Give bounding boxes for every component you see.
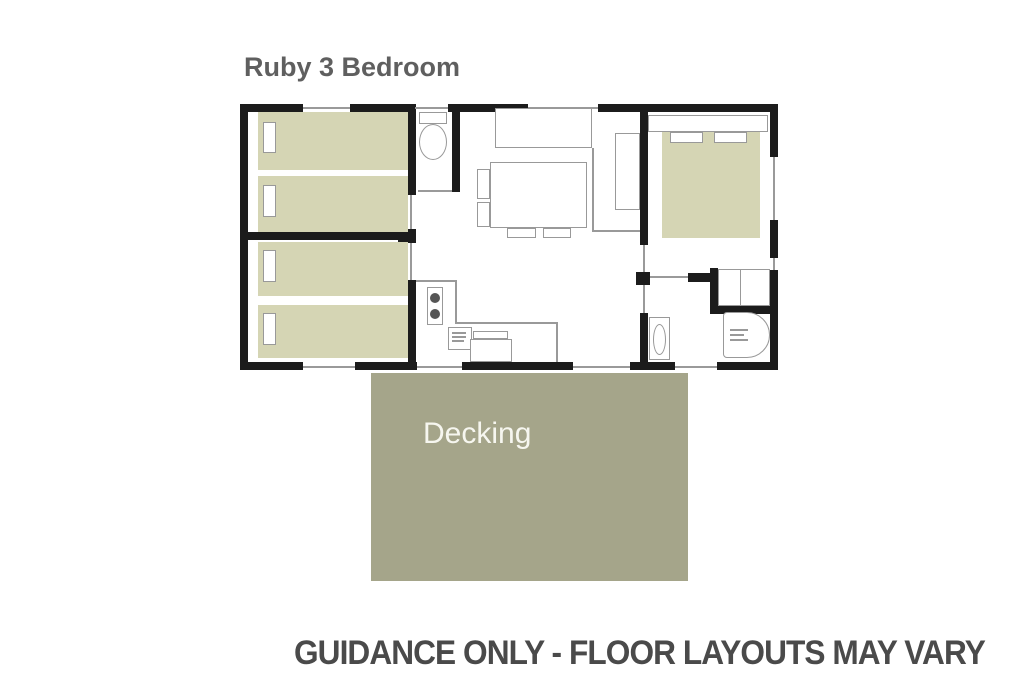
chair (507, 228, 536, 238)
sink-drainer-line (452, 336, 466, 338)
decking-area: Decking (371, 373, 688, 581)
wardrobe-divider-line (740, 269, 741, 306)
door-opening (410, 243, 412, 280)
hob-burner-icon (430, 293, 440, 303)
double-bed (662, 132, 760, 238)
counter-edge (455, 280, 457, 324)
pillow (263, 250, 276, 282)
counter-edge (556, 322, 558, 362)
window-line (773, 157, 775, 220)
shower-drain-line (730, 339, 748, 341)
sink-symbol (448, 327, 472, 350)
pillow (263, 122, 276, 153)
wall-segment (770, 104, 778, 157)
floor-plan: Decking (0, 0, 1024, 682)
guidance-caption: GUIDANCE ONLY - FLOOR LAYOUTS MAY VARY (294, 634, 985, 673)
pillow (714, 132, 747, 143)
sofa-symbol (615, 133, 640, 210)
sofa-symbol (495, 108, 592, 148)
wall-segment (640, 313, 648, 362)
wall-segment (717, 362, 778, 370)
window-line (303, 107, 350, 109)
door-opening (418, 190, 452, 192)
pillow (670, 132, 703, 143)
window-line (573, 366, 630, 368)
pillow (263, 185, 276, 217)
wall-segment (770, 220, 778, 258)
shower-drain-line (730, 334, 744, 336)
wall-segment (240, 362, 303, 370)
single-bed (258, 112, 408, 170)
chair (477, 202, 490, 227)
wall-segment (636, 272, 650, 285)
toilet-symbol (419, 124, 447, 160)
sink-drainer-line (452, 332, 466, 334)
dining-table (490, 162, 587, 228)
door-opening (410, 195, 412, 229)
sofa-edge-line (592, 230, 640, 232)
wall-segment (452, 104, 460, 192)
wall-segment (240, 232, 400, 240)
door-opening (643, 245, 645, 272)
sink-drainer-line (452, 340, 464, 342)
chair (543, 228, 571, 238)
wall-segment (462, 362, 573, 370)
door-opening (643, 285, 645, 313)
shower-drain-line (730, 329, 748, 331)
kitchen-unit (470, 339, 512, 362)
window-line (675, 366, 717, 368)
hob-burner-icon (430, 309, 440, 319)
wall-segment (350, 104, 415, 112)
wall-segment (630, 362, 675, 370)
wall-segment (240, 104, 303, 112)
sofa-edge-line (592, 148, 594, 232)
toilet-cistern-symbol (419, 112, 447, 124)
toilet-bowl-symbol (653, 324, 666, 355)
single-bed (258, 242, 408, 296)
door-opening (650, 276, 688, 278)
wardrobe (718, 269, 770, 306)
counter-edge (455, 322, 557, 324)
wall-segment (770, 270, 778, 370)
window-line (303, 366, 355, 368)
headboard (648, 115, 768, 132)
wall-segment (598, 104, 778, 112)
chair (477, 169, 490, 199)
wall-segment (408, 280, 416, 370)
wall-segment (640, 104, 648, 245)
decking-label: Decking (423, 417, 531, 451)
single-bed (258, 305, 408, 358)
floor-plan-page: Ruby 3 Bedroom (0, 0, 1024, 682)
window-line (773, 258, 775, 270)
pillow (263, 313, 276, 345)
window-line (417, 366, 462, 368)
wall-segment (408, 104, 416, 195)
counter-edge (416, 280, 455, 282)
window-line (415, 107, 448, 109)
worktop-appliance (473, 331, 508, 339)
single-bed (258, 176, 408, 232)
